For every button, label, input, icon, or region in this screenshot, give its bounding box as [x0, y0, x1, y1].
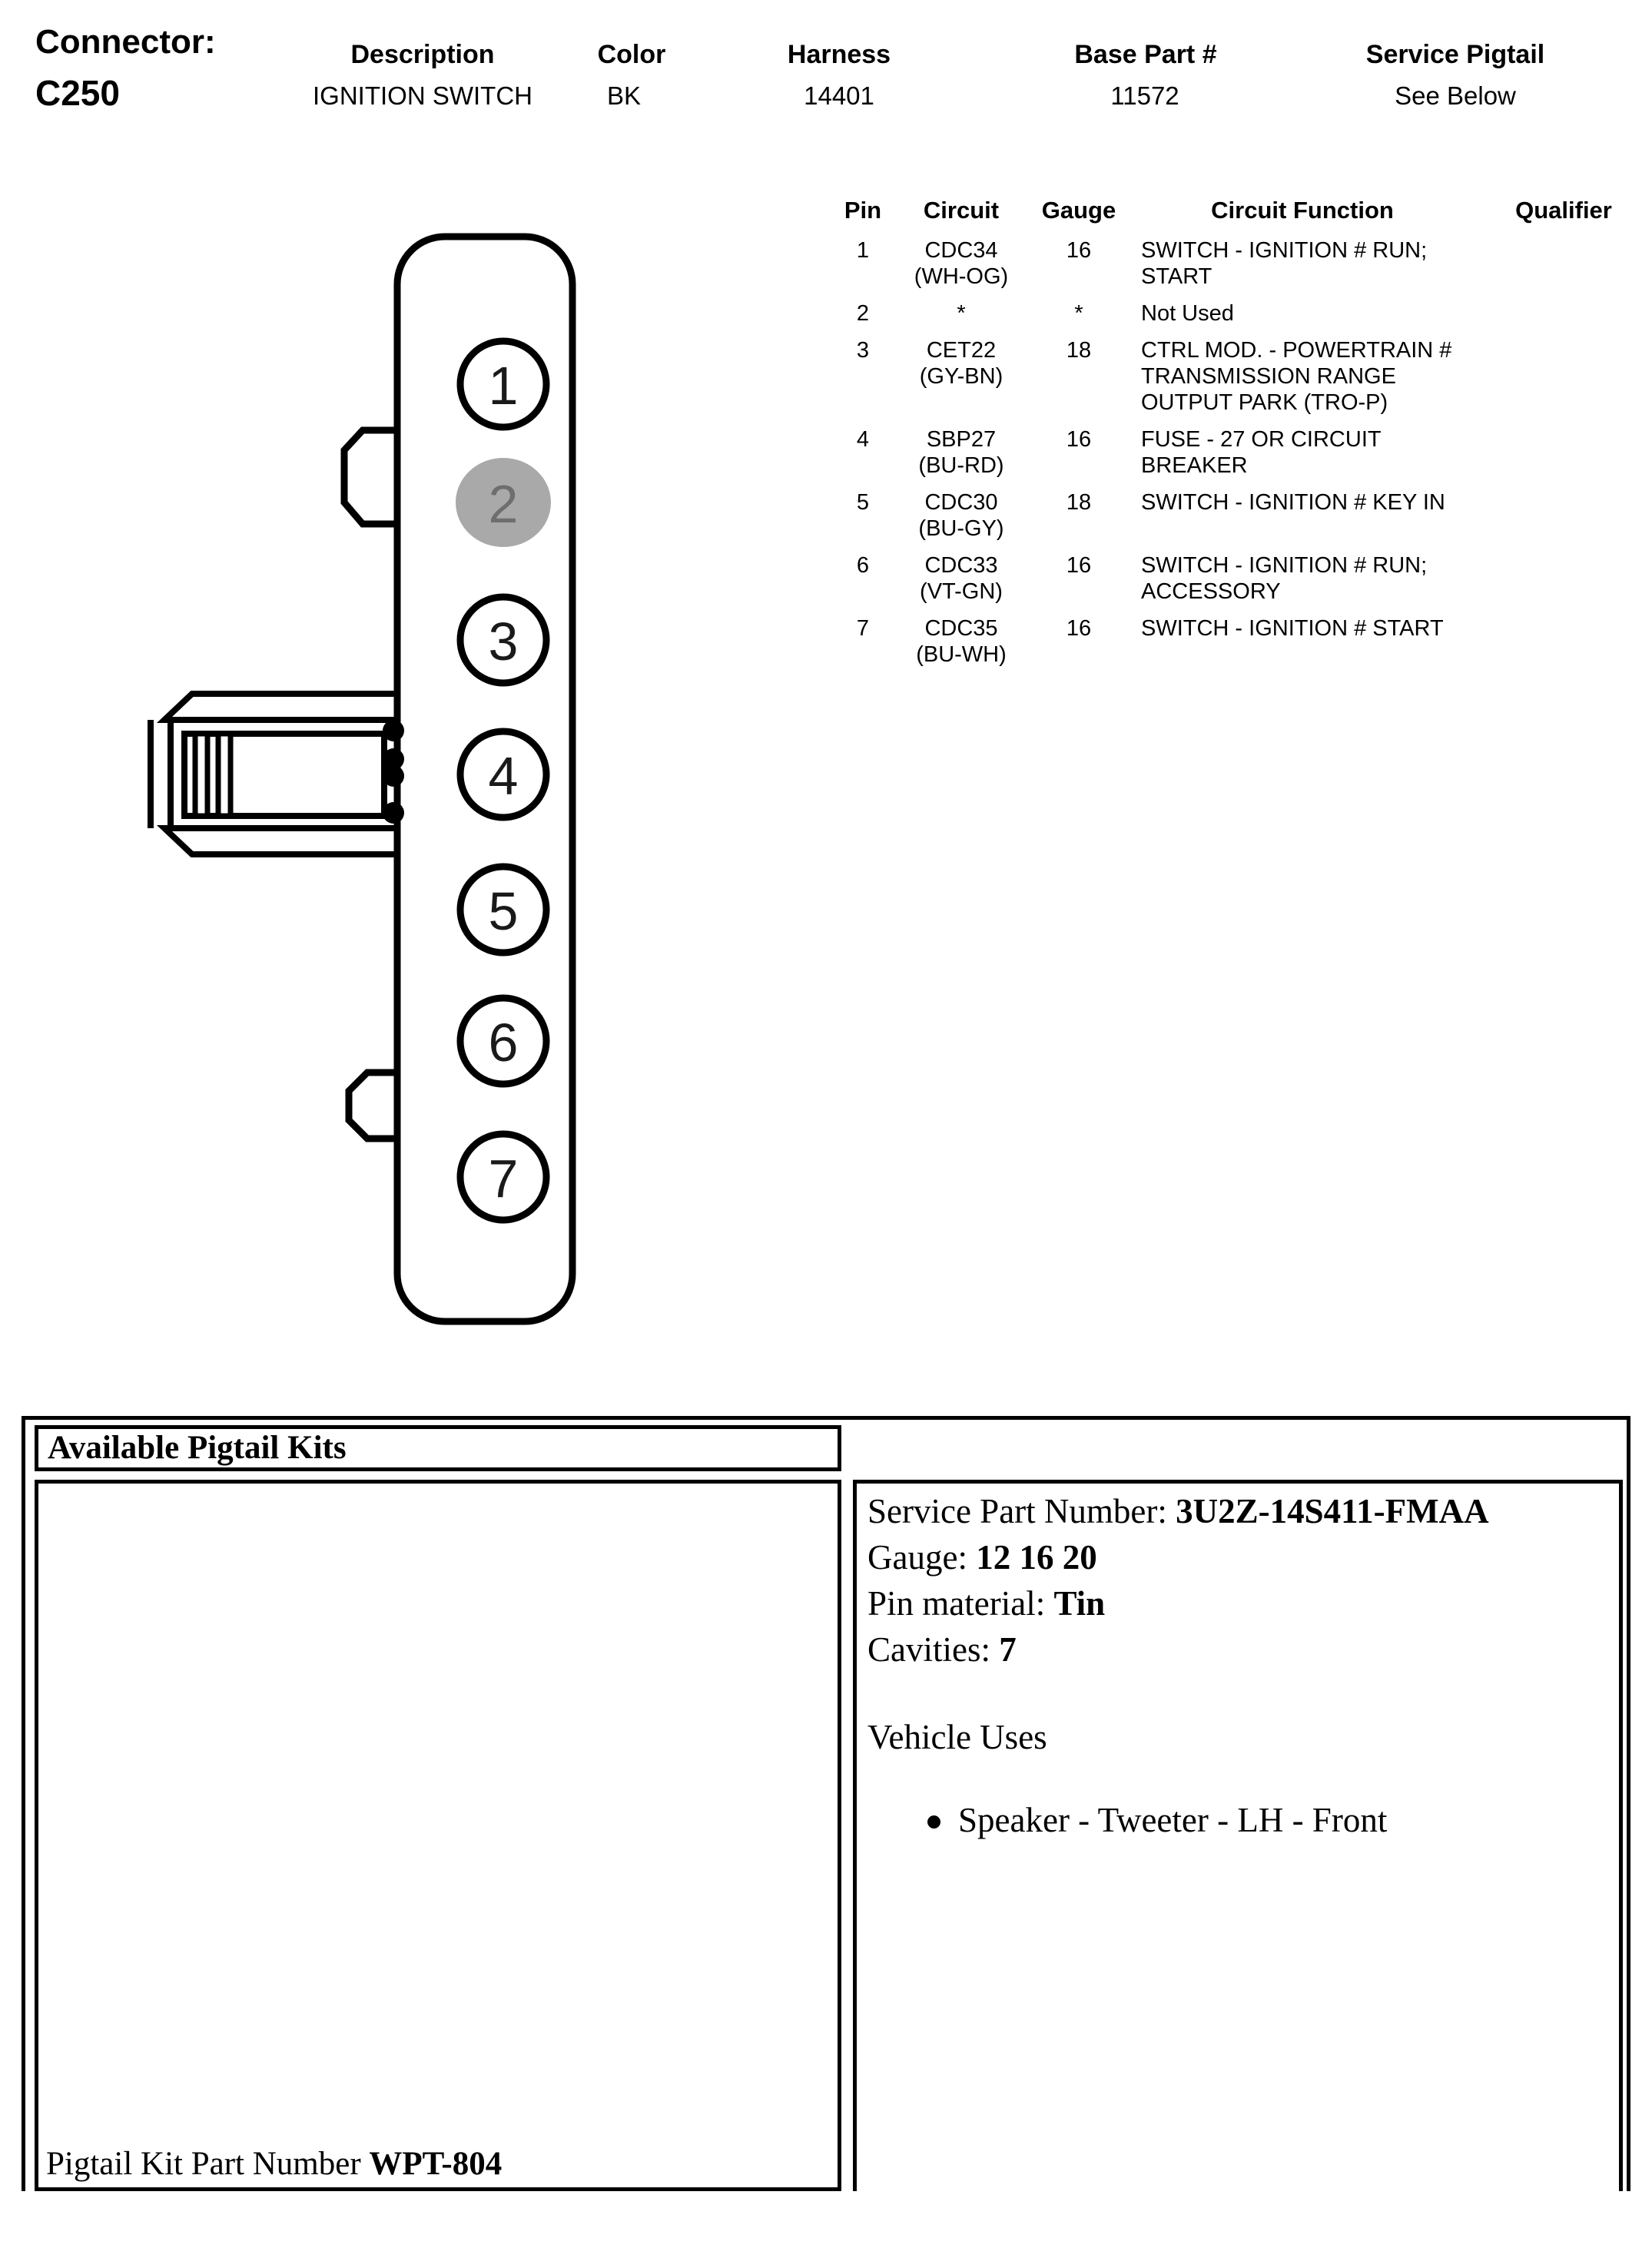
detail-value: 12 16 20: [976, 1538, 1097, 1577]
pin-table-header: PinCircuitGaugeCircuit FunctionQualifier: [834, 197, 1650, 224]
pin-table-row: 5CDC30 (BU-GY)18SWITCH - IGNITION # KEY …: [834, 489, 1650, 542]
latch-dot: [383, 765, 404, 787]
header-field-value: IGNITION SWITCH: [313, 81, 532, 111]
gauge-cell: 16: [1030, 426, 1127, 479]
pin-table-rows: 1CDC34 (WH-OG)16SWITCH - IGNITION # RUN;…: [834, 237, 1650, 668]
pin-label-2: 2: [489, 474, 519, 534]
qualifier-cell: [1478, 300, 1650, 327]
gauge-cell: 18: [1030, 337, 1127, 416]
detail-line: Service Part Number: 3U2Z-14S411-FMAA: [867, 1488, 1611, 1534]
detail-line: Gauge: 12 16 20: [867, 1534, 1611, 1580]
pin-cell: 4: [834, 426, 892, 479]
lower-tab-shape: [349, 1073, 401, 1139]
detail-label: Pin material:: [867, 1584, 1053, 1623]
header-field-label: Description: [350, 40, 494, 70]
header-field-label: Service Pigtail: [1366, 40, 1544, 70]
pin-table-row: 4SBP27 (BU-RD)16FUSE - 27 OR CIRCUIT BRE…: [834, 426, 1650, 479]
pin-cell: 1: [834, 237, 892, 290]
qualifier-cell: [1478, 337, 1650, 416]
gauge-cell: 16: [1030, 552, 1127, 605]
gauge-cell: 16: [1030, 237, 1127, 290]
pin-table-row: 6CDC33 (VT-GN)16SWITCH - IGNITION # RUN;…: [834, 552, 1650, 605]
pin-table-header-cell: Gauge: [1030, 197, 1127, 224]
qualifier-cell: [1478, 615, 1650, 668]
detail-value: Tin: [1053, 1584, 1105, 1623]
header-field-value: 11572: [1110, 81, 1179, 111]
pigtail-kit-part-number-value: WPT-804: [369, 2146, 502, 2182]
detail-label: Service Part Number:: [867, 1492, 1176, 1530]
qualifier-cell: [1478, 426, 1650, 479]
pin-cell: 7: [834, 615, 892, 668]
pin-cell: 6: [834, 552, 892, 605]
pin-table-header-cell: Circuit: [892, 197, 1030, 224]
header-field-value: 14401: [804, 81, 874, 111]
qualifier-cell: [1478, 489, 1650, 542]
circuit-cell: CDC30 (BU-GY): [892, 489, 1030, 542]
circuit-cell: CDC33 (VT-GN): [892, 552, 1030, 605]
detail-line: Pin material: Tin: [867, 1580, 1611, 1626]
pin-table-row: 2**Not Used: [834, 300, 1650, 327]
service-part-details: Service Part Number: 3U2Z-14S411-FMAAGau…: [867, 1488, 1611, 1673]
connector-label: Connector:: [35, 23, 216, 61]
gauge-cell: *: [1030, 300, 1127, 327]
upper-tab-shape: [344, 430, 401, 524]
pin-table-row: 3CET22 (GY-BN)18CTRL MOD. - POWERTRAIN #…: [834, 337, 1650, 416]
function-cell: SWITCH - IGNITION # START: [1127, 615, 1478, 668]
connector-id: C250: [35, 72, 120, 114]
pin-table-header-cell: Qualifier: [1478, 197, 1650, 224]
pin-cell: 3: [834, 337, 892, 416]
header-field-label: Color: [598, 40, 666, 70]
pin-label-5: 5: [489, 881, 519, 941]
pin-cell: 2: [834, 300, 892, 327]
pigtail-kit-cell: Pigtail Kit Part Number WPT-804: [35, 1480, 841, 2191]
detail-value: 3U2Z-14S411-FMAA: [1176, 1492, 1488, 1530]
connector-spec-page: Connector: C250 DescriptionIGNITION SWIT…: [0, 0, 1652, 2248]
pin-label-4: 4: [489, 746, 519, 806]
detail-line: Cavities: 7: [867, 1626, 1611, 1673]
pin-table: PinCircuitGaugeCircuit FunctionQualifier…: [834, 197, 1650, 678]
function-cell: FUSE - 27 OR CIRCUIT BREAKER: [1127, 426, 1478, 479]
pin-label-7: 7: [489, 1149, 519, 1209]
detail-label: Gauge:: [867, 1538, 976, 1577]
function-cell: CTRL MOD. - POWERTRAIN # TRANSMISSION RA…: [1127, 337, 1478, 416]
header-field-label: Base Part #: [1074, 40, 1216, 70]
vehicle-uses-title: Vehicle Uses: [867, 1714, 1611, 1760]
function-cell: SWITCH - IGNITION # KEY IN: [1127, 489, 1478, 542]
circuit-cell: CDC35 (BU-WH): [892, 615, 1030, 668]
circuit-cell: CET22 (GY-BN): [892, 337, 1030, 416]
gauge-cell: 16: [1030, 615, 1127, 668]
function-cell: Not Used: [1127, 300, 1478, 327]
connector-diagram: 1234567: [115, 215, 653, 1344]
latch-dots: [383, 720, 404, 824]
header-field-value: See Below: [1395, 81, 1516, 111]
mounting-latch: [151, 694, 397, 854]
vehicle-use-item: Speaker - Tweeter - LH - Front: [867, 1797, 1611, 1843]
pin-table-header-cell: Pin: [834, 197, 892, 224]
pin-cell: 5: [834, 489, 892, 542]
header-field-label: Harness: [788, 40, 891, 70]
latch-dot: [383, 802, 404, 824]
vehicle-uses-list: Speaker - Tweeter - LH - Front: [867, 1797, 1611, 1843]
available-pigtail-kits-box: Available Pigtail Kits: [35, 1425, 841, 1471]
pin-table-header-cell: Circuit Function: [1127, 197, 1478, 224]
circuit-cell: *: [892, 300, 1030, 327]
function-cell: SWITCH - IGNITION # RUN; ACCESSORY: [1127, 552, 1478, 605]
service-part-cell: Service Part Number: 3U2Z-14S411-FMAAGau…: [853, 1480, 1623, 2191]
circuit-cell: CDC34 (WH-OG): [892, 237, 1030, 290]
latch-dot: [383, 720, 404, 741]
qualifier-cell: [1478, 552, 1650, 605]
available-pigtail-kits-title: Available Pigtail Kits: [38, 1429, 838, 1467]
pin-table-row: 7CDC35 (BU-WH)16SWITCH - IGNITION # STAR…: [834, 615, 1650, 668]
pin-label-6: 6: [489, 1013, 519, 1073]
qualifier-cell: [1478, 237, 1650, 290]
pin-label-3: 3: [489, 612, 519, 671]
detail-label: Cavities:: [867, 1630, 999, 1669]
function-cell: SWITCH - IGNITION # RUN; START: [1127, 237, 1478, 290]
pin-table-row: 1CDC34 (WH-OG)16SWITCH - IGNITION # RUN;…: [834, 237, 1650, 290]
detail-value: 7: [999, 1630, 1017, 1669]
circuit-cell: SBP27 (BU-RD): [892, 426, 1030, 479]
gauge-cell: 18: [1030, 489, 1127, 542]
pigtail-kit-part-number-label: Pigtail Kit Part Number: [46, 2146, 369, 2182]
pin-label-1: 1: [489, 356, 519, 416]
header-field-value: BK: [607, 81, 641, 111]
pigtail-kit-part-number-line: Pigtail Kit Part Number WPT-804: [46, 2145, 502, 2183]
